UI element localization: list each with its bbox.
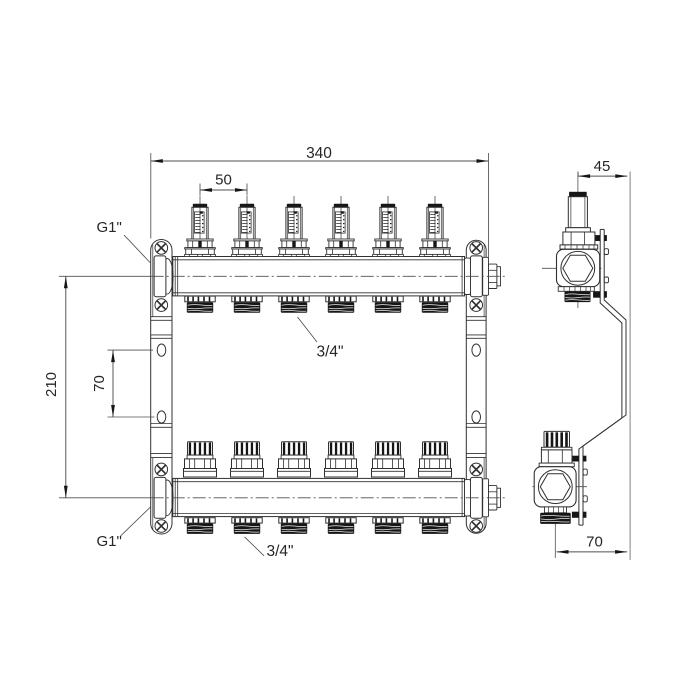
svg-text:45: 45 bbox=[594, 158, 611, 175]
svg-text:70: 70 bbox=[586, 534, 603, 551]
svg-text:G1": G1" bbox=[97, 219, 122, 236]
svg-text:3/4": 3/4" bbox=[267, 543, 294, 560]
svg-text:3/4": 3/4" bbox=[317, 344, 344, 361]
svg-text:340: 340 bbox=[306, 145, 332, 162]
svg-text:G1": G1" bbox=[97, 533, 122, 550]
svg-text:50: 50 bbox=[215, 172, 232, 189]
svg-text:70: 70 bbox=[91, 375, 108, 392]
svg-text:210: 210 bbox=[43, 372, 60, 397]
